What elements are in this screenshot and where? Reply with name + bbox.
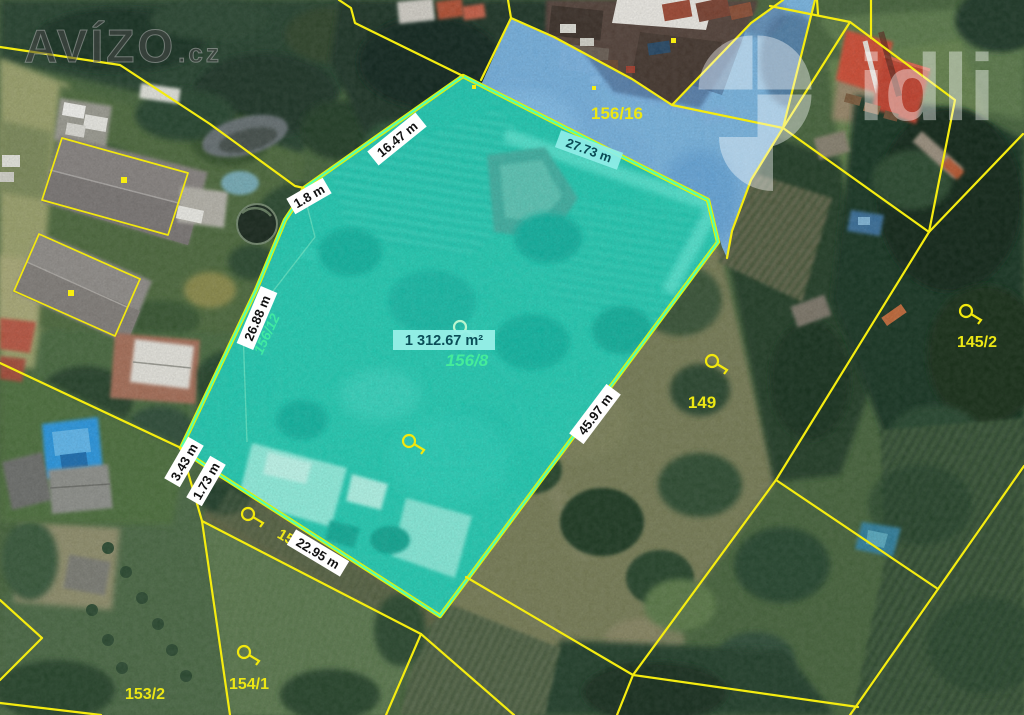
svg-text:149: 149 bbox=[688, 393, 716, 412]
svg-text:156/8: 156/8 bbox=[446, 351, 489, 370]
svg-text:154/1: 154/1 bbox=[229, 676, 269, 693]
svg-text:156/16: 156/16 bbox=[591, 104, 643, 123]
svg-text:145/2: 145/2 bbox=[957, 334, 997, 351]
svg-text:153/2: 153/2 bbox=[125, 686, 165, 703]
svg-text:1 312.67 m²: 1 312.67 m² bbox=[405, 333, 483, 349]
svg-text:idli: idli bbox=[858, 35, 995, 141]
